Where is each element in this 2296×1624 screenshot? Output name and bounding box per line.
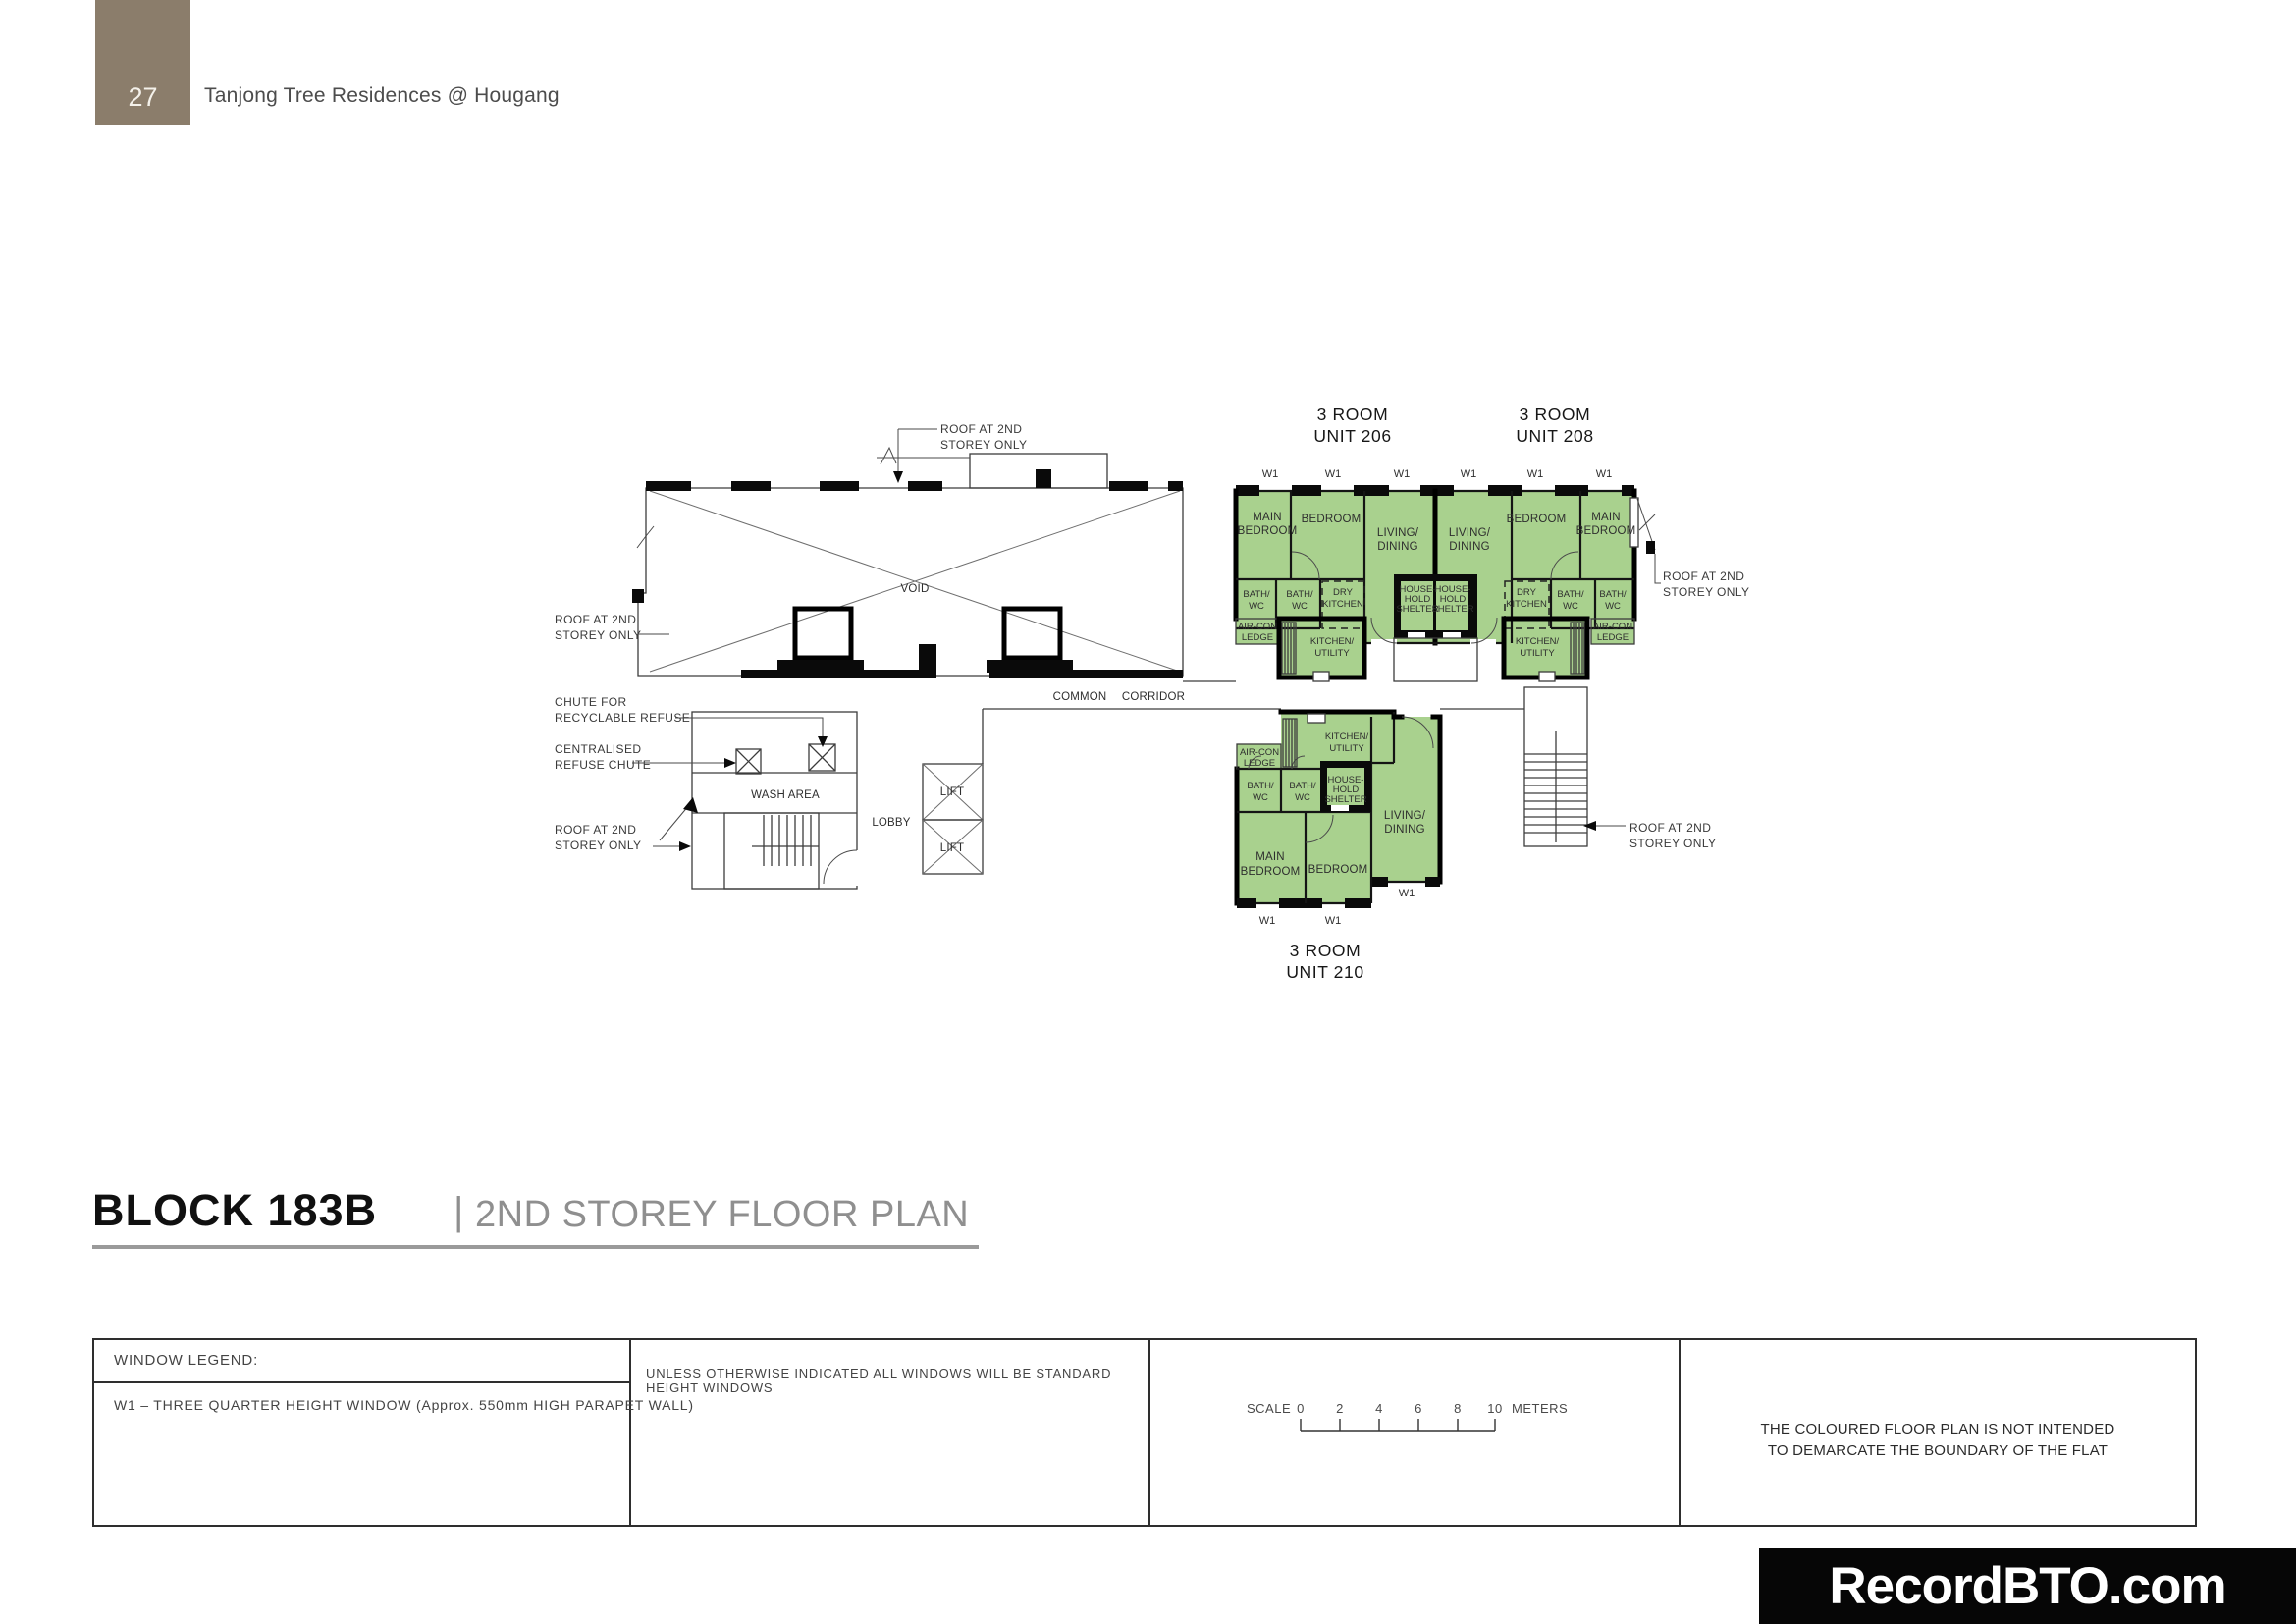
room-label: WC <box>1292 601 1308 612</box>
room-label: LEDGE <box>1242 632 1273 643</box>
w1-label: W1 <box>1394 468 1411 480</box>
room-label: AIR-CON <box>1240 747 1279 758</box>
room-label: UTILITY <box>1329 743 1364 754</box>
w1-labels-top: W1 W1 W1 W1 W1 W1 <box>1262 468 1613 480</box>
disclaimer: THE COLOURED FLOOR PLAN IS NOT INTENDED … <box>1681 1419 2195 1462</box>
unit-208-label: UNIT 208 <box>1516 426 1593 446</box>
room-label: DINING <box>1384 824 1424 836</box>
scale-tick: 10 <box>1487 1401 1502 1416</box>
room-label: BATH/ <box>1247 781 1274 791</box>
stairs-right <box>1524 687 1587 846</box>
room-label: WC <box>1295 792 1310 803</box>
scale-bar: SCALE 0 2 4 6 8 10 METERS <box>1247 1397 1580 1441</box>
lift-shafts: LIFT LIFT <box>923 764 983 874</box>
unit-210: KITCHEN/ UTILITY AIR-CON LEDGE BATH/ WC … <box>1237 712 1440 927</box>
room-label: BATH/ <box>1286 589 1313 600</box>
room-label: KITCHEN <box>1322 599 1363 610</box>
room-label: MAIN <box>1253 512 1282 523</box>
scale-unit: METERS <box>1512 1401 1568 1416</box>
w1-label: W1 <box>1596 468 1613 480</box>
stairs-left <box>752 815 819 866</box>
room-label: KITCHEN <box>1506 599 1547 610</box>
unit-208-label: 3 ROOM <box>1520 405 1591 424</box>
room-label: LEDGE <box>1244 758 1275 769</box>
room-label: BATH/ <box>1243 589 1270 600</box>
annotation-central-chute: REFUSE CHUTE <box>555 758 651 772</box>
wash-area-label: WASH AREA <box>751 789 820 801</box>
watermark: RecordBTO.com <box>1759 1548 2296 1624</box>
annotation-roof: ROOF AT 2ND <box>555 613 636 626</box>
legend-table: WINDOW LEGEND: W1 – THREE QUARTER HEIGHT… <box>92 1338 2197 1527</box>
annotation-roof: STOREY ONLY <box>555 839 641 852</box>
room-label: BEDROOM <box>1241 866 1301 878</box>
table-divider <box>94 1381 629 1383</box>
room-label: DRY <box>1517 587 1537 598</box>
w1-label: W1 <box>1325 468 1342 480</box>
room-label: UTILITY <box>1520 648 1555 659</box>
room-label: BATH/ <box>1289 781 1316 791</box>
unit-206-label: 3 ROOM <box>1317 405 1389 424</box>
w1-label: W1 <box>1527 468 1544 480</box>
room-label: LIVING/ <box>1377 527 1419 539</box>
scale-label: SCALE <box>1247 1401 1291 1416</box>
room-label: BEDROOM <box>1302 514 1362 525</box>
table-divider <box>1148 1340 1150 1525</box>
annotation-roof: ROOF AT 2ND <box>940 422 1022 436</box>
corridor-label: COMMON <box>1053 691 1107 703</box>
unit-210-label: UNIT 210 <box>1286 962 1363 982</box>
room-label: WC <box>1249 601 1264 612</box>
disclaimer-line: TO DEMARCATE THE BOUNDARY OF THE FLAT <box>1681 1440 2195 1462</box>
storey-title: 2ND STOREY FLOOR PLAN <box>475 1194 969 1236</box>
annotation-roof: STOREY ONLY <box>940 438 1027 452</box>
room-label: UTILITY <box>1314 648 1350 659</box>
annotation-central-chute: CENTRALISED <box>555 742 641 756</box>
annotation-chute: RECYCLABLE REFUSE <box>555 711 690 725</box>
w1-label: W1 <box>1259 915 1276 927</box>
room-label: KITCHEN/ <box>1325 731 1369 742</box>
void-label: VOID <box>901 583 930 595</box>
corridor-label: CORRIDOR <box>1122 691 1185 703</box>
unit-206-208 <box>1236 485 1638 681</box>
common-corridor: COMMON CORRIDOR <box>983 681 1524 709</box>
room-label: MAIN <box>1255 851 1285 863</box>
w1-label: W1 <box>1399 888 1415 899</box>
room-label: SHELTER <box>1431 604 1473 615</box>
annotation-roof: ROOF AT 2ND <box>1663 569 1744 583</box>
room-label: BEDROOM <box>1238 525 1298 537</box>
lobby-label: LOBBY <box>872 817 910 829</box>
room-label: LIVING/ <box>1384 810 1426 822</box>
room-label: AIR-CON <box>1593 622 1632 632</box>
disclaimer-line: THE COLOURED FLOOR PLAN IS NOT INTENDED <box>1681 1419 2195 1440</box>
room-label: WC <box>1253 792 1268 803</box>
room-label: SHELTER <box>1324 794 1366 805</box>
w1-label: W1 <box>1262 468 1279 480</box>
annotation-roof: STOREY ONLY <box>1663 585 1749 599</box>
scale-tick: 2 <box>1336 1401 1344 1416</box>
room-label: KITCHEN/ <box>1310 636 1355 647</box>
room-label: BEDROOM <box>1308 864 1368 876</box>
lift-label: LIFT <box>940 842 964 854</box>
lift-label: LIFT <box>940 786 964 798</box>
room-label: BEDROOM <box>1507 514 1567 525</box>
scale-tick: 0 <box>1297 1401 1305 1416</box>
room-label: AIR-CON <box>1238 622 1277 632</box>
annotation-roof: STOREY ONLY <box>555 628 641 642</box>
annotation-roof: ROOF AT 2ND <box>1629 821 1711 835</box>
room-label: BEDROOM <box>1576 525 1636 537</box>
room-label: WC <box>1563 601 1578 612</box>
wash-lobby-block: WASH AREA LOBBY LIFT LIFT <box>692 709 983 889</box>
room-label: LEDGE <box>1597 632 1629 643</box>
scale-tick: 8 <box>1454 1401 1462 1416</box>
annotation-chute: CHUTE FOR <box>555 695 627 709</box>
block-title: BLOCK 183B <box>92 1185 377 1236</box>
w1-description: W1 – THREE QUARTER HEIGHT WINDOW (Approx… <box>114 1397 694 1413</box>
unit-210-label: 3 ROOM <box>1290 941 1362 960</box>
unit-206-label: UNIT 206 <box>1313 426 1391 446</box>
room-label: KITCHEN/ <box>1516 636 1560 647</box>
scale-tick: 4 <box>1375 1401 1383 1416</box>
title-separator: | <box>454 1190 463 1234</box>
room-label: BATH/ <box>1599 589 1627 600</box>
scale-tick: 6 <box>1415 1401 1422 1416</box>
title-underline <box>92 1245 979 1249</box>
room-label: LIVING/ <box>1449 527 1491 539</box>
room-label: DINING <box>1449 541 1489 553</box>
annotation-roof: STOREY ONLY <box>1629 837 1716 850</box>
room-label: WC <box>1605 601 1621 612</box>
windows-note: UNLESS OTHERWISE INDICATED ALL WINDOWS W… <box>646 1366 1137 1395</box>
floor-plan: VOID WASH AREA <box>0 0 2296 1060</box>
window-legend-header: WINDOW LEGEND: <box>114 1352 258 1369</box>
w1-label: W1 <box>1461 468 1477 480</box>
room-label: DRY <box>1333 587 1354 598</box>
w1-label: W1 <box>1325 915 1342 927</box>
room-label: DINING <box>1377 541 1417 553</box>
page: 27 Tanjong Tree Residences @ Hougang <box>0 0 2296 1624</box>
annotation-roof: ROOF AT 2ND <box>555 823 636 837</box>
void-block: VOID <box>637 454 1183 678</box>
room-label: BATH/ <box>1557 589 1584 600</box>
table-divider <box>629 1340 631 1525</box>
room-label: MAIN <box>1591 512 1621 523</box>
